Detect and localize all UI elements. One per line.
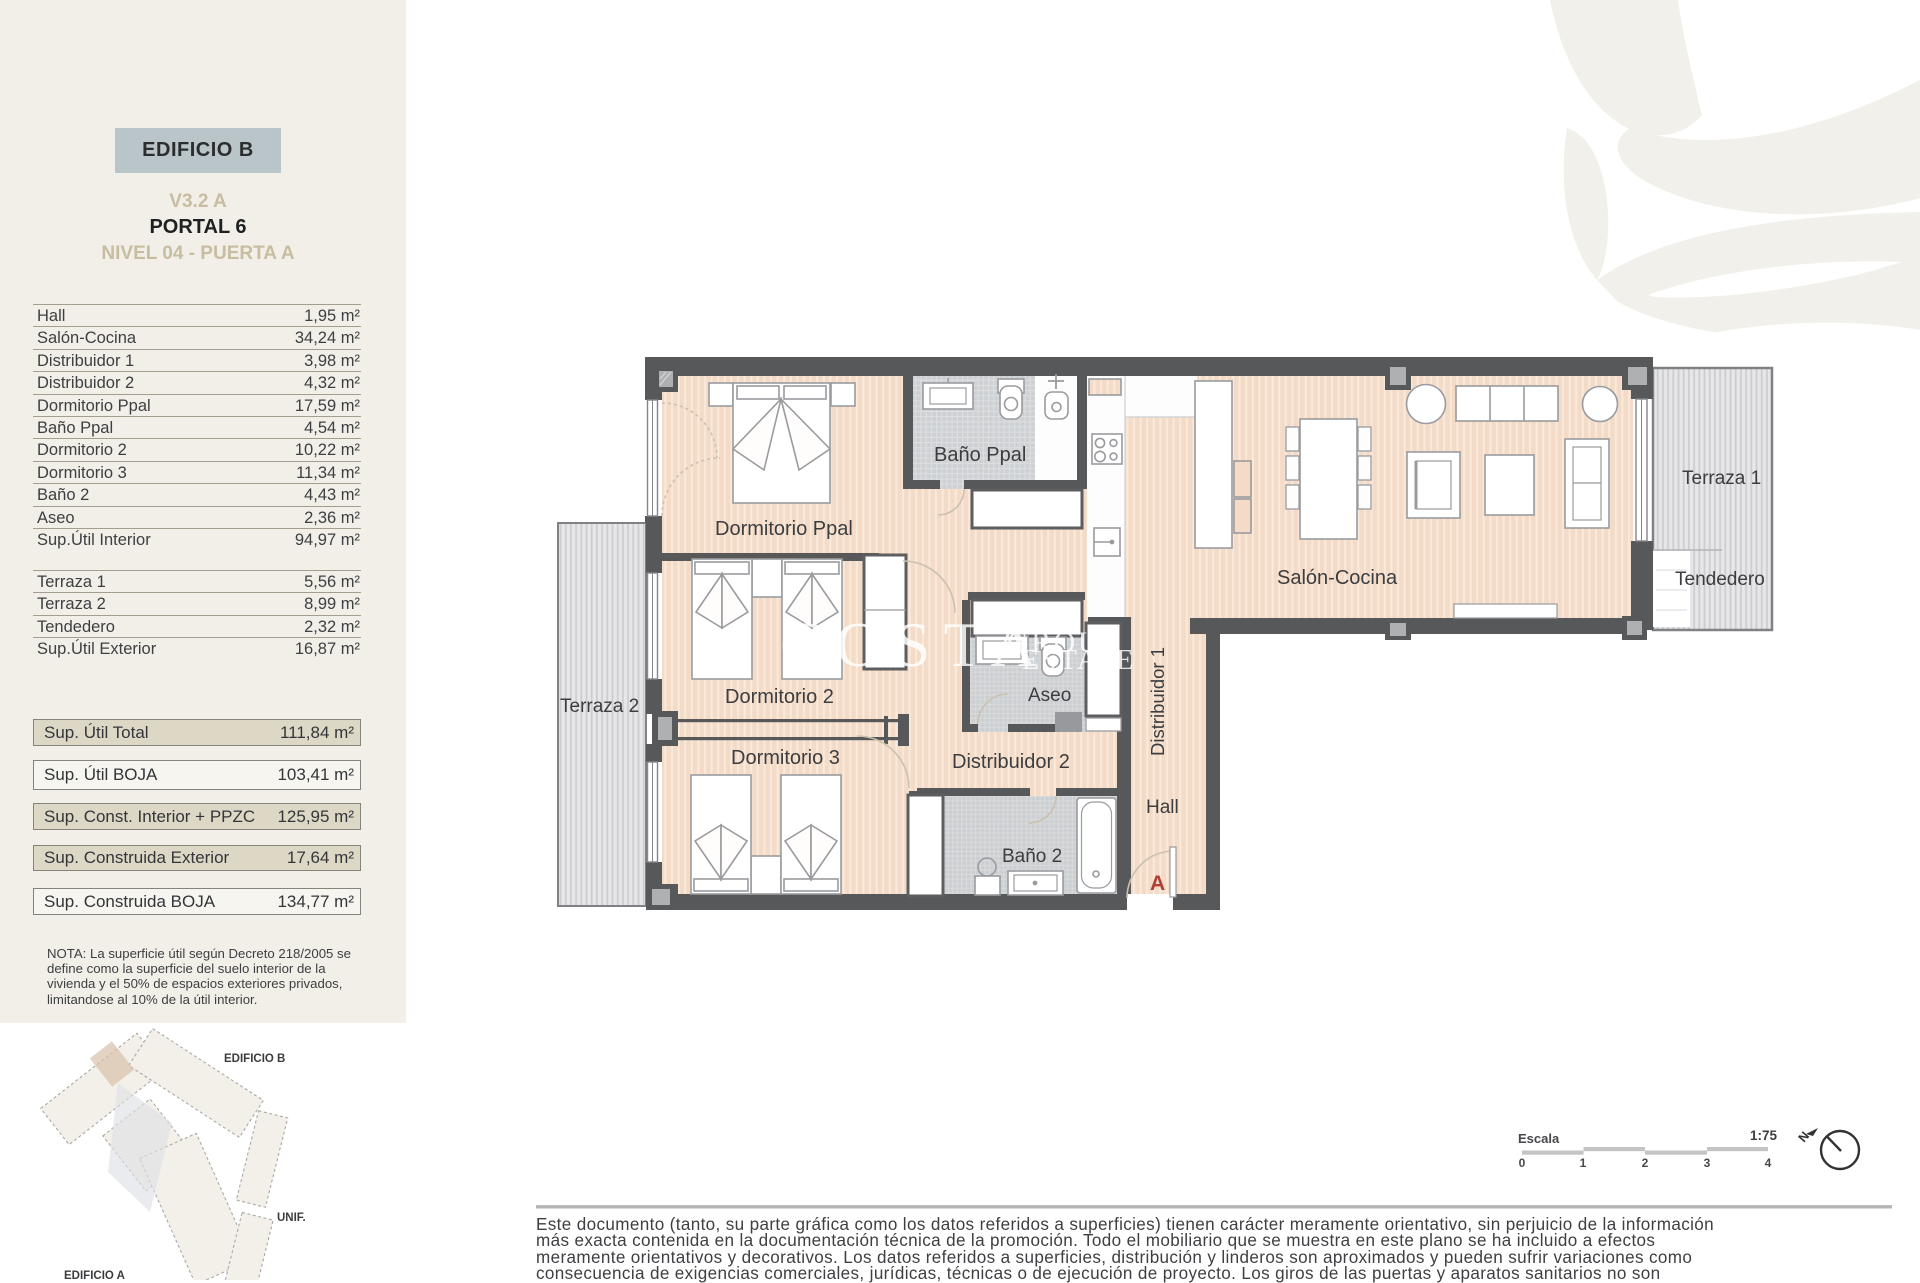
svg-text:Aseo: Aseo bbox=[1028, 685, 1071, 706]
svg-text:Terraza 1: Terraza 1 bbox=[1682, 468, 1761, 489]
svg-text:Terraza 2: Terraza 2 bbox=[560, 696, 639, 717]
svg-text:Salón-Cocina: Salón-Cocina bbox=[1277, 567, 1398, 589]
svg-text:EDIFICIO B: EDIFICIO B bbox=[224, 1053, 285, 1065]
svg-text:N: N bbox=[1796, 1129, 1813, 1145]
svg-text:Baño Ppal: Baño Ppal bbox=[934, 444, 1026, 466]
svg-text:A: A bbox=[1150, 872, 1165, 895]
svg-text:Baño 2: Baño 2 bbox=[1002, 846, 1062, 867]
svg-text:EDIFICIO A: EDIFICIO A bbox=[64, 1270, 125, 1280]
svg-text:UNIF.: UNIF. bbox=[277, 1212, 306, 1224]
svg-text:Distribuidor 2: Distribuidor 2 bbox=[952, 751, 1070, 773]
svg-text:Tendedero: Tendedero bbox=[1675, 569, 1765, 590]
svg-text:ESTATE: ESTATE bbox=[1022, 645, 1136, 676]
svg-text:Hall: Hall bbox=[1146, 797, 1179, 818]
svg-text:Dormitorio 2: Dormitorio 2 bbox=[725, 686, 834, 708]
svg-text:Dormitorio Ppal: Dormitorio Ppal bbox=[715, 518, 853, 540]
svg-text:Dormitorio 3: Dormitorio 3 bbox=[731, 747, 840, 769]
svg-text:Distribuidor 1: Distribuidor 1 bbox=[1147, 647, 1168, 756]
